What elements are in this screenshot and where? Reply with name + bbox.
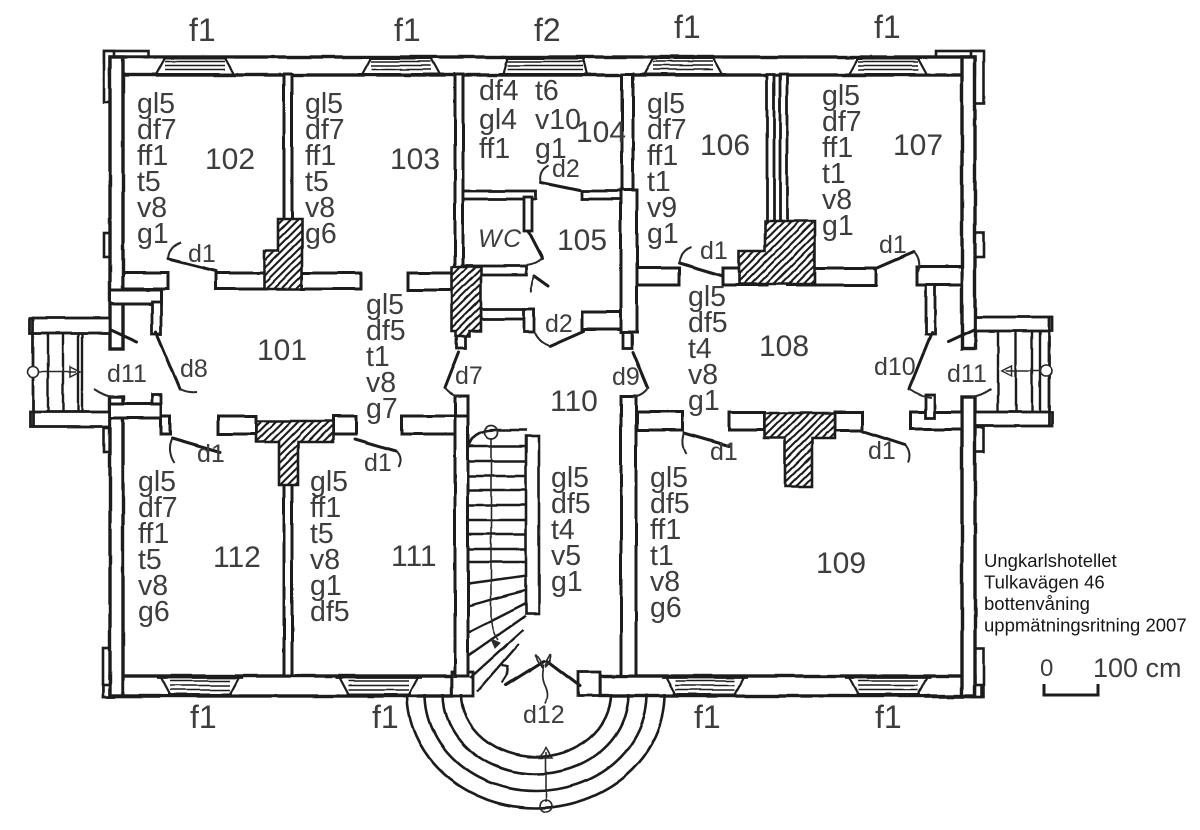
svg-text:d1: d1: [879, 231, 907, 259]
svg-text:100 cm: 100 cm: [1093, 653, 1182, 683]
svg-text:f1: f1: [674, 9, 701, 45]
svg-text:WC: WC: [478, 225, 523, 253]
svg-text:109: 109: [816, 547, 866, 580]
svg-text:d1: d1: [188, 240, 216, 268]
svg-text:d10: d10: [874, 353, 916, 381]
svg-text:105: 105: [557, 224, 607, 257]
svg-text:112: 112: [213, 541, 261, 574]
svg-text:108: 108: [759, 330, 809, 363]
svg-text:f1: f1: [189, 12, 216, 48]
svg-text:d1: d1: [710, 438, 738, 466]
svg-text:d1: d1: [364, 449, 392, 477]
svg-text:d1: d1: [700, 237, 728, 265]
svg-text:d2: d2: [545, 310, 573, 338]
svg-text:d12: d12: [523, 701, 565, 729]
svg-text:f1: f1: [874, 9, 901, 45]
svg-text:110: 110: [550, 385, 598, 418]
svg-text:d1: d1: [868, 437, 896, 465]
svg-text:d11: d11: [107, 360, 147, 388]
svg-text:0: 0: [1040, 655, 1053, 682]
svg-text:d9: d9: [612, 363, 640, 391]
svg-text:f2: f2: [534, 12, 561, 48]
svg-text:f1: f1: [372, 699, 399, 735]
svg-text:102: 102: [205, 143, 255, 176]
svg-text:104: 104: [576, 116, 626, 149]
svg-text:d2: d2: [552, 155, 580, 183]
svg-text:d8: d8: [180, 355, 208, 383]
svg-text:d11: d11: [947, 360, 987, 388]
svg-text:f1: f1: [694, 699, 721, 735]
svg-text:d1: d1: [197, 440, 225, 468]
svg-text:f1: f1: [394, 12, 421, 48]
svg-text:f1: f1: [190, 699, 217, 735]
svg-text:111: 111: [391, 540, 437, 573]
svg-text:f1: f1: [875, 699, 902, 735]
svg-text:101: 101: [257, 334, 307, 367]
svg-text:103: 103: [390, 143, 440, 176]
svg-text:107: 107: [893, 129, 943, 162]
svg-text:106: 106: [700, 129, 750, 162]
svg-text:d7: d7: [455, 362, 483, 390]
